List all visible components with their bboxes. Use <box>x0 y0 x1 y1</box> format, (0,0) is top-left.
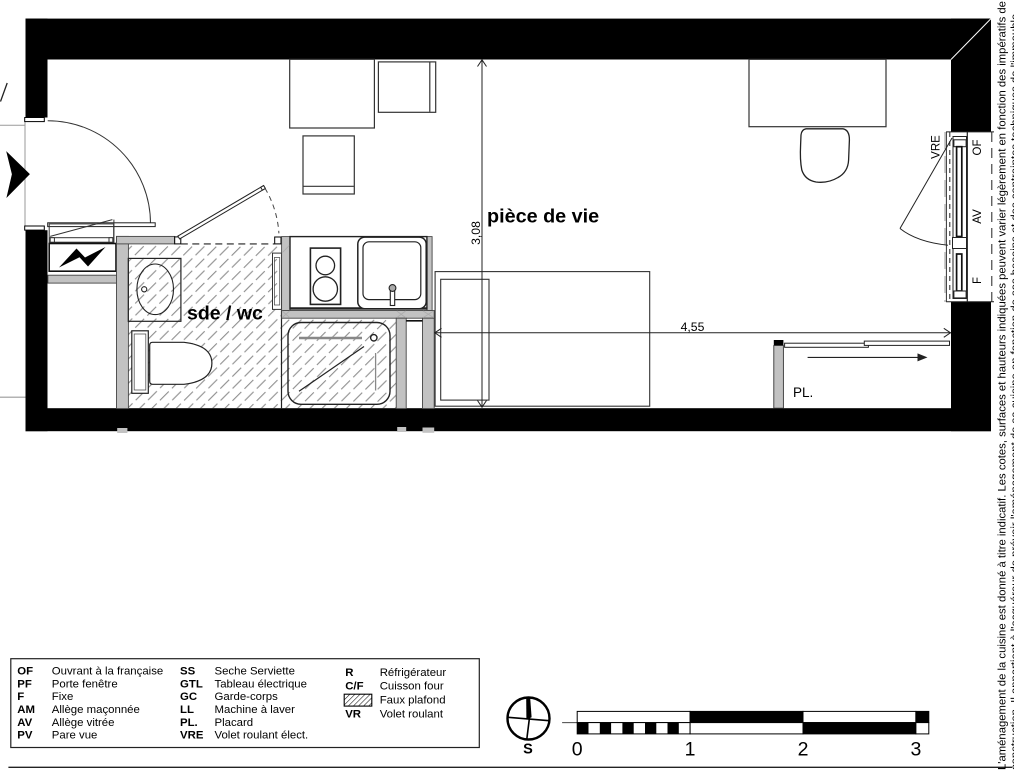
svg-text:Porte fenêtre: Porte fenêtre <box>52 678 118 690</box>
svg-text:OF: OF <box>972 140 984 156</box>
svg-text:Volet roulant: Volet roulant <box>380 709 444 721</box>
svg-text:Seche Serviette: Seche Serviette <box>215 666 295 678</box>
svg-text:4,55: 4,55 <box>681 320 705 334</box>
svg-text:PL.: PL. <box>180 717 198 729</box>
svg-text:Placard: Placard <box>215 717 254 729</box>
svg-text:construction. Il appartient à: construction. Il appartient à l'acquéreu… <box>1010 11 1014 770</box>
svg-text:PL.: PL. <box>793 385 813 400</box>
svg-text:VR: VR <box>345 709 361 721</box>
svg-text:0: 0 <box>572 739 583 761</box>
svg-text:Machine à laver: Machine à laver <box>215 704 296 716</box>
svg-text:GC: GC <box>180 691 197 703</box>
svg-text:Pare vue: Pare vue <box>52 730 98 742</box>
svg-text:Cuisson four: Cuisson four <box>380 681 444 693</box>
svg-text:Faux plafond: Faux plafond <box>380 695 446 707</box>
svg-text:AM: AM <box>17 704 35 716</box>
svg-text:Tableau électrique: Tableau électrique <box>215 678 307 690</box>
svg-text:VRE: VRE <box>931 135 943 159</box>
svg-text:AV: AV <box>972 209 984 224</box>
svg-text:Allège vitrée: Allège vitrée <box>52 717 115 729</box>
svg-text:AV: AV <box>17 717 32 729</box>
svg-text:Allège maçonnée: Allège maçonnée <box>52 704 140 716</box>
svg-text:S: S <box>523 742 533 758</box>
svg-text:PV: PV <box>17 730 33 742</box>
svg-text:Volet roulant élect.: Volet roulant élect. <box>215 730 309 742</box>
svg-text:OF: OF <box>17 666 33 678</box>
svg-text:R: R <box>345 667 353 679</box>
svg-text:pièce de vie: pièce de vie <box>487 206 599 228</box>
svg-text:F: F <box>972 277 984 284</box>
svg-text:Garde-corps: Garde-corps <box>215 691 279 703</box>
svg-text:Ouvrant à la française: Ouvrant à la française <box>52 666 163 678</box>
svg-text:LL: LL <box>180 704 194 716</box>
svg-text:2: 2 <box>798 739 809 761</box>
svg-text:VRE: VRE <box>180 730 204 742</box>
svg-text:SS: SS <box>180 666 196 678</box>
svg-text:GTL: GTL <box>180 678 203 690</box>
svg-text:1: 1 <box>685 739 696 761</box>
svg-text:3: 3 <box>910 739 921 761</box>
svg-text:C/F: C/F <box>345 681 363 693</box>
svg-text:L'aménagement de la cuisine es: L'aménagement de la cuisine est donné à … <box>997 1 1009 770</box>
svg-text:F: F <box>17 691 24 703</box>
svg-text:PF: PF <box>17 678 32 690</box>
svg-text:sde / wc: sde / wc <box>187 303 263 325</box>
svg-text:Réfrigérateur: Réfrigérateur <box>380 667 447 679</box>
svg-text:Fixe: Fixe <box>52 691 74 703</box>
svg-text:3,08: 3,08 <box>469 221 483 245</box>
